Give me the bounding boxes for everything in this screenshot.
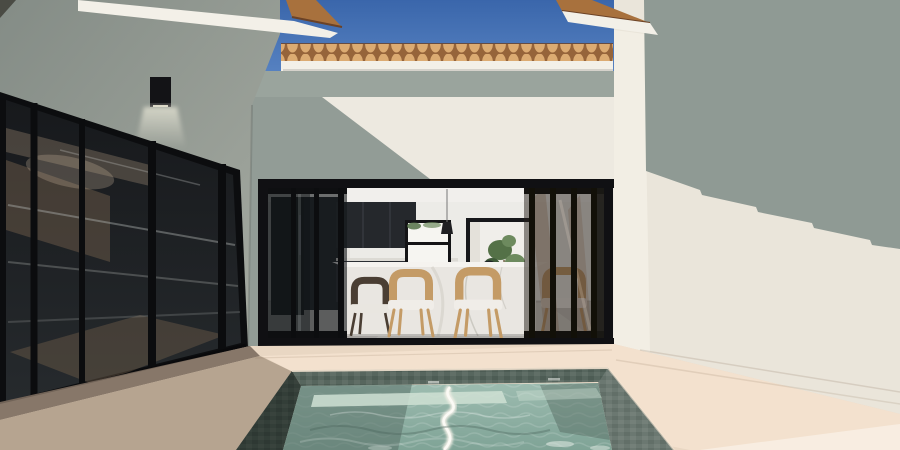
dining-table — [332, 262, 548, 338]
door-mullion — [338, 188, 344, 339]
glass-highlight — [298, 194, 301, 332]
door-mullion — [571, 188, 577, 339]
upper-cabinets — [336, 202, 416, 248]
door-mullion — [529, 188, 535, 339]
tile-roofline — [281, 44, 613, 62]
stacked-door-panels-left — [268, 188, 347, 339]
parapet-band — [248, 71, 616, 97]
waterline-glint — [428, 381, 439, 384]
table-shadow — [344, 334, 536, 338]
door-mullion — [591, 188, 597, 339]
door-mullion — [550, 188, 556, 339]
water-foam — [546, 441, 574, 447]
plunge-pool — [236, 368, 674, 450]
waterline-glint — [548, 378, 560, 381]
window-greenery — [407, 223, 421, 230]
fixed-dark-panel — [597, 188, 604, 339]
right-wall-corner — [614, 30, 650, 352]
courtyard-render — [0, 0, 900, 450]
interior-scene — [268, 188, 604, 339]
stacked-door-panels-right — [524, 188, 604, 339]
door-mullion — [291, 188, 296, 339]
door-mullion — [314, 188, 319, 339]
